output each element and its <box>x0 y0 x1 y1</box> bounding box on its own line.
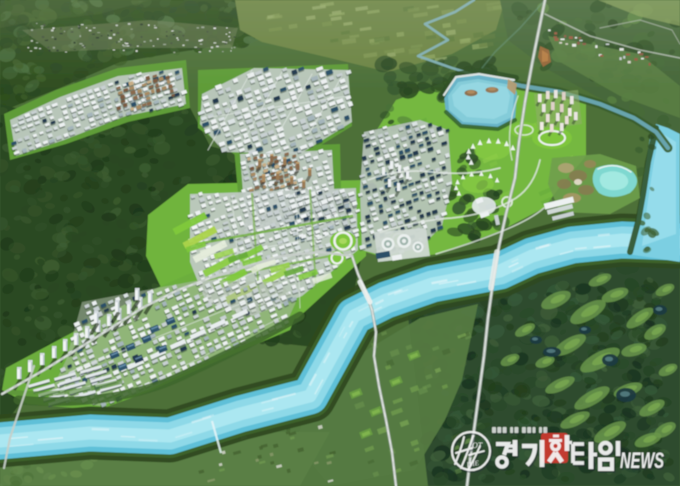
svg-text:OT: OT <box>472 441 483 450</box>
svg-text:NEWS: NEWS <box>620 448 664 473</box>
